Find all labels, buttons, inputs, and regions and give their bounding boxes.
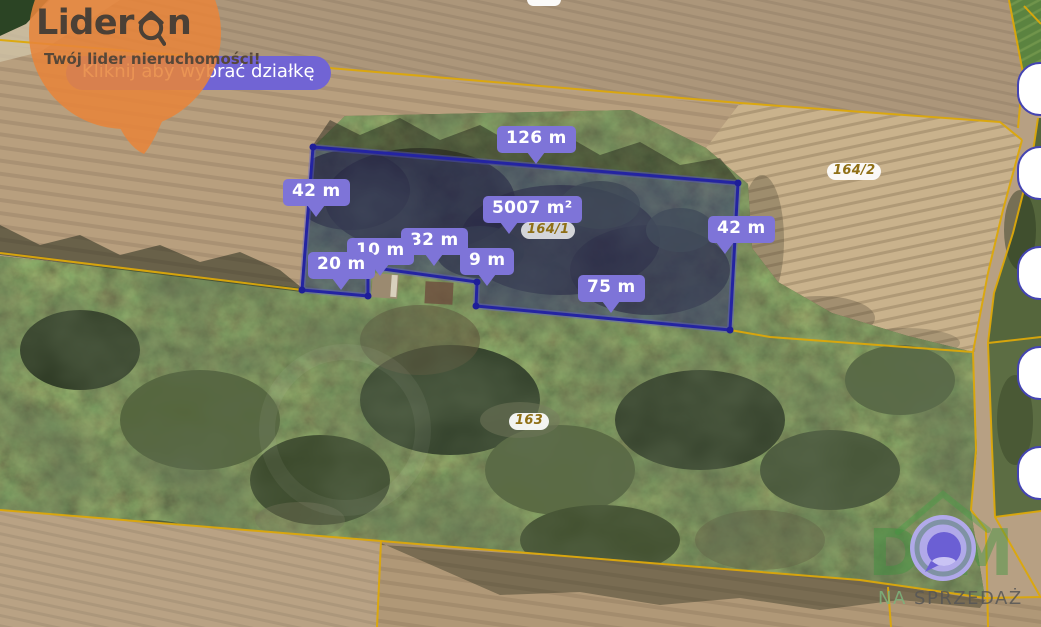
listing-map[interactable]: D M 126 m 42 m 5007 m² 42 m 32 m 10 m 20… [0, 0, 1041, 627]
brand-tagline: Twój lider nieruchomości! [44, 50, 261, 68]
measurement-label-42m-right: 42 m [708, 216, 775, 243]
measurement-label-42m-left: 42 m [283, 179, 350, 206]
measurement-label-20m: 20 m [308, 252, 375, 279]
watermark-na: NA [878, 588, 907, 609]
watermark-sprzedaz: SPRZEDAŻ [914, 588, 1023, 609]
logo-text-prefix: Lider [36, 4, 134, 43]
watermark-caption: NA SPRZEDAŻ [878, 588, 1023, 609]
parcel-badge-163: 163 [509, 413, 549, 430]
measurement-label-9m: 9 m [460, 248, 514, 275]
satellite-map[interactable]: D M [0, 0, 1041, 627]
measurement-label-75m: 75 m [578, 275, 645, 302]
parcel-badge-164-2: 164/2 [827, 163, 881, 180]
brand-logo: Lider n [36, 4, 191, 56]
measurement-label-126m: 126 m [497, 126, 576, 153]
logo-text-suffix: n [167, 4, 191, 43]
area-label: 5007 m² [483, 196, 582, 223]
cutoff-parcel-badge [527, 0, 561, 6]
parcel-badge-164-1: 164/1 [521, 222, 575, 239]
magnifier-house-icon [136, 9, 166, 56]
